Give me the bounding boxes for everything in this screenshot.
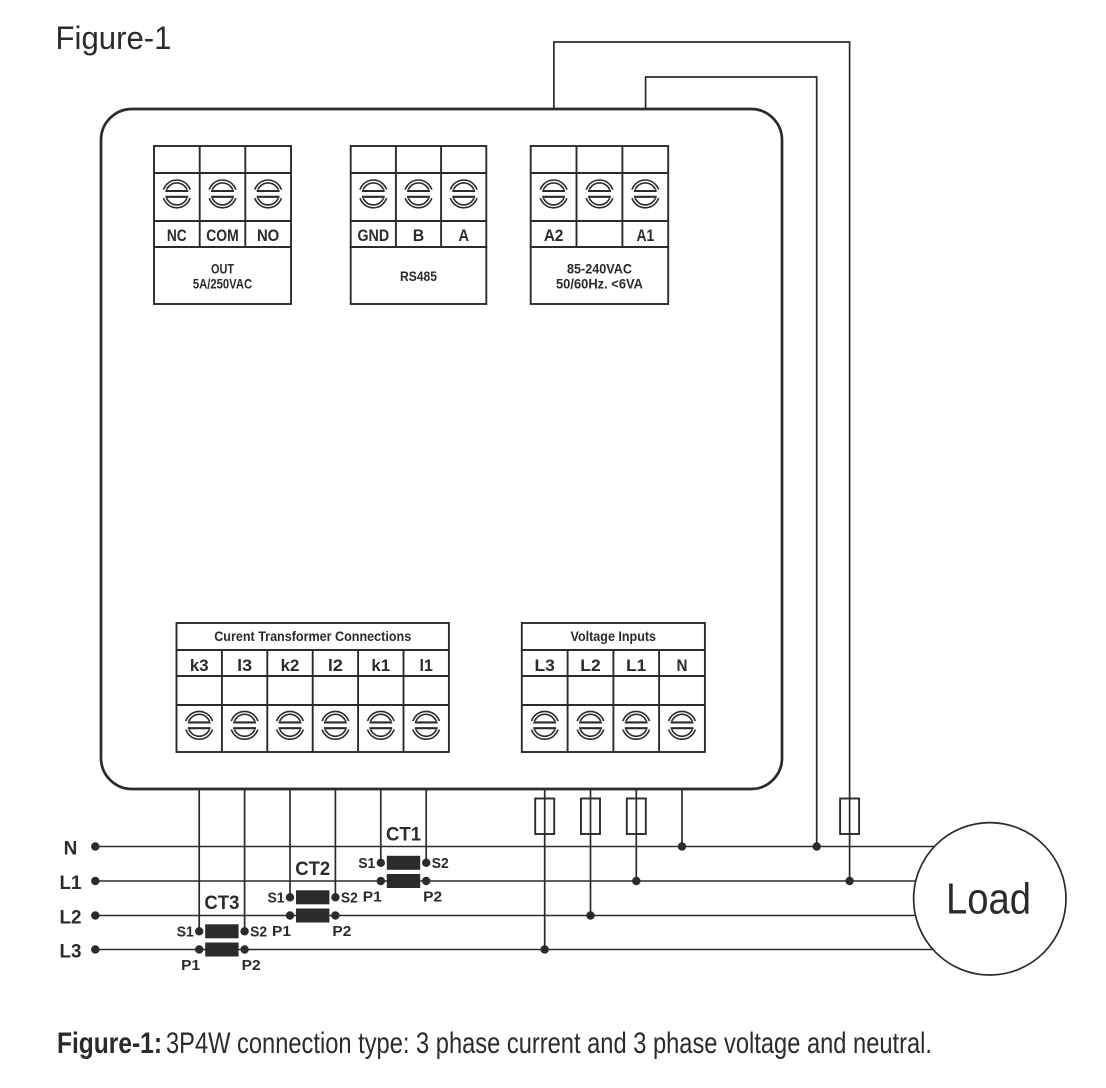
svg-text:GND: GND bbox=[357, 227, 389, 245]
svg-text:S1: S1 bbox=[358, 855, 375, 872]
svg-text:RS485: RS485 bbox=[400, 269, 437, 284]
svg-text:L2: L2 bbox=[580, 657, 600, 675]
svg-text:S2: S2 bbox=[432, 855, 449, 872]
svg-text:P1: P1 bbox=[272, 923, 291, 940]
svg-text:85-240VAC: 85-240VAC bbox=[567, 262, 632, 277]
svg-text:L3: L3 bbox=[60, 940, 82, 962]
svg-text:N: N bbox=[64, 837, 78, 859]
svg-text:k1: k1 bbox=[371, 657, 390, 675]
svg-text:l2: l2 bbox=[328, 657, 343, 675]
svg-text:Curent Transformer Connections: Curent Transformer Connections bbox=[214, 628, 411, 644]
svg-text:OUT: OUT bbox=[211, 262, 235, 277]
svg-text:l1: l1 bbox=[419, 657, 433, 675]
svg-text:N: N bbox=[677, 657, 688, 675]
svg-text:S2: S2 bbox=[250, 924, 267, 941]
svg-text:COM: COM bbox=[206, 227, 239, 245]
svg-text:l3: l3 bbox=[237, 657, 252, 675]
svg-text:CT3: CT3 bbox=[204, 893, 239, 914]
svg-text:P2: P2 bbox=[242, 957, 261, 974]
svg-text:Figure-1:3P4W connection type:: Figure-1:3P4W connection type: 3 phase c… bbox=[57, 1027, 932, 1060]
svg-text:k3: k3 bbox=[190, 657, 209, 675]
svg-text:A1: A1 bbox=[636, 227, 654, 245]
svg-text:CT1: CT1 bbox=[386, 825, 421, 846]
svg-text:k2: k2 bbox=[281, 657, 300, 675]
svg-text:5A/250VAC: 5A/250VAC bbox=[193, 277, 252, 292]
svg-text:L3: L3 bbox=[535, 657, 555, 675]
svg-text:Voltage Inputs: Voltage Inputs bbox=[571, 628, 657, 644]
svg-text:B: B bbox=[413, 227, 425, 245]
svg-text:Load: Load bbox=[946, 876, 1031, 924]
svg-text:P1: P1 bbox=[181, 957, 200, 974]
svg-text:CT2: CT2 bbox=[295, 859, 330, 880]
svg-text:A2: A2 bbox=[544, 227, 564, 245]
svg-text:NC: NC bbox=[167, 227, 187, 245]
svg-text:Figure-1: Figure-1 bbox=[56, 20, 172, 56]
svg-text:P1: P1 bbox=[363, 889, 382, 906]
svg-text:P2: P2 bbox=[332, 923, 351, 940]
svg-text:NO: NO bbox=[257, 227, 279, 245]
svg-text:L2: L2 bbox=[60, 906, 82, 928]
svg-text:S1: S1 bbox=[177, 924, 194, 941]
svg-text:S2: S2 bbox=[341, 890, 358, 907]
svg-text:P2: P2 bbox=[423, 889, 442, 906]
svg-text:L1: L1 bbox=[60, 872, 82, 894]
svg-text:A: A bbox=[458, 227, 469, 245]
svg-text:S1: S1 bbox=[268, 890, 285, 907]
svg-text:50/60Hz. <6VA: 50/60Hz. <6VA bbox=[556, 277, 643, 292]
svg-text:L1: L1 bbox=[626, 657, 646, 675]
